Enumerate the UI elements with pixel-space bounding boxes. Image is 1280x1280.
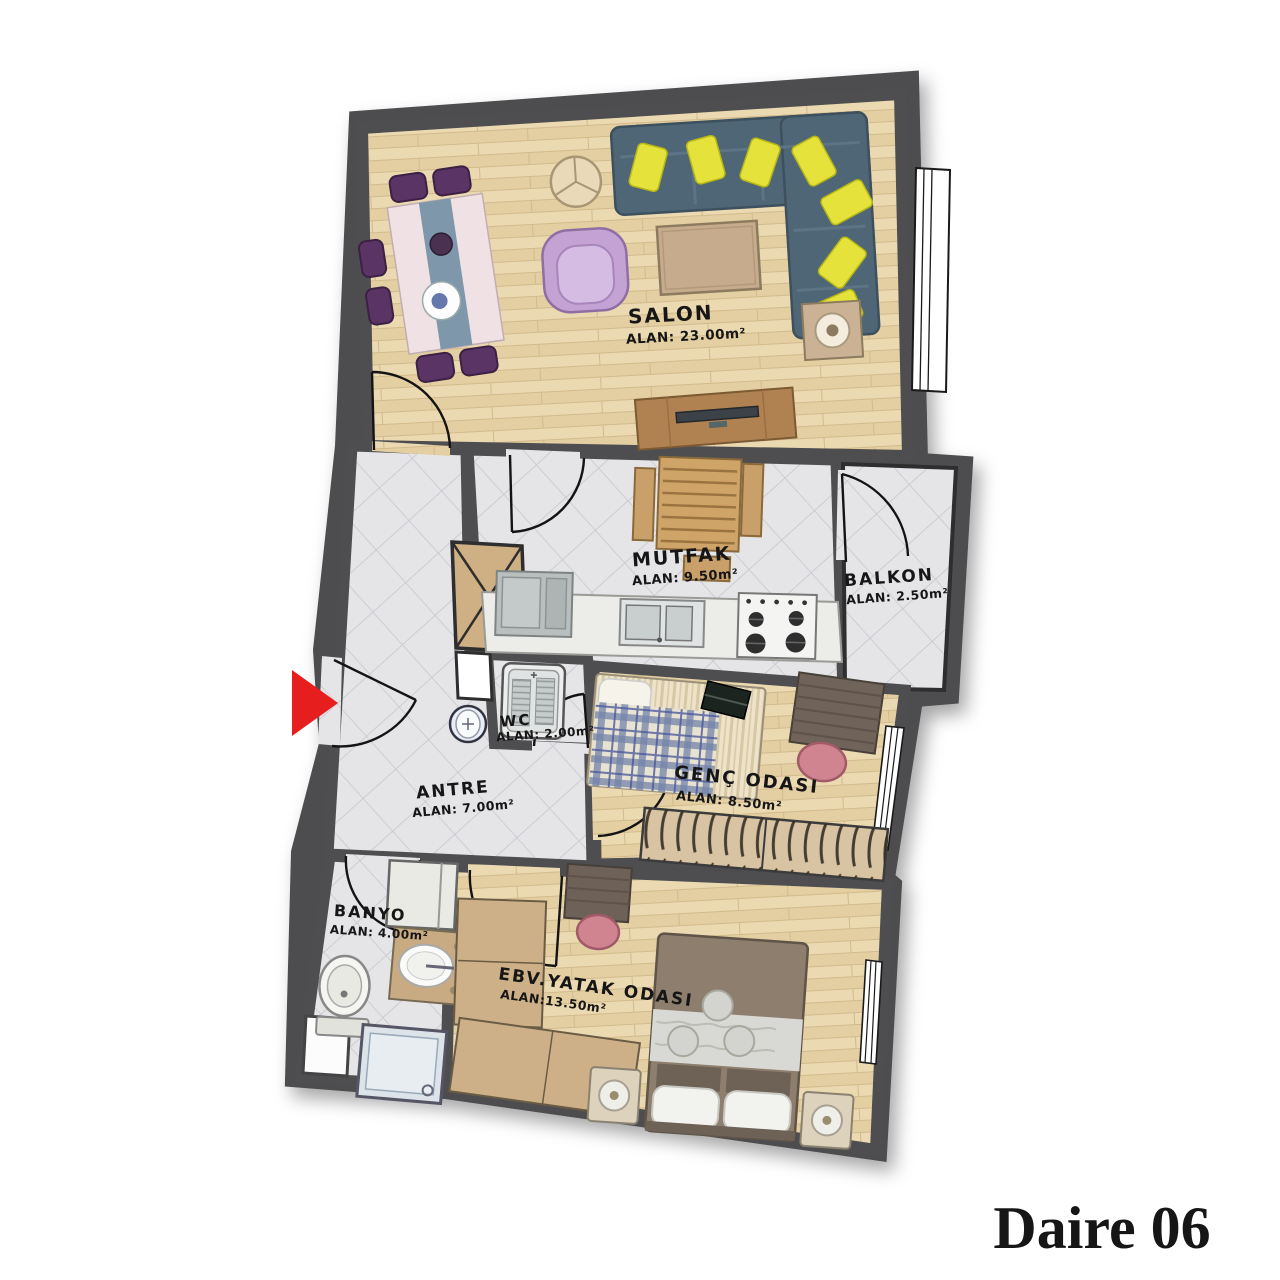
rosette-pillow <box>667 1025 699 1057</box>
rosette-pillow <box>702 989 734 1021</box>
salon-label: SALON <box>627 300 714 328</box>
armchair <box>541 227 630 314</box>
shower-tray <box>357 1024 447 1103</box>
fridge <box>495 571 573 637</box>
plan-title: Daire 06 <box>993 1195 1210 1261</box>
floor-plan-canvas: SALON ALAN: 23.00m² MUTFAK ALAN: 9.50m² … <box>0 0 1280 1280</box>
speaker-table <box>802 301 863 360</box>
coffee-table <box>657 221 761 295</box>
genc-desk <box>790 672 885 753</box>
wc-hand-sink <box>450 706 486 742</box>
round-side-table <box>549 155 602 208</box>
nightstand-right <box>800 1092 854 1149</box>
ebv-desk <box>564 864 632 922</box>
stove <box>737 593 817 659</box>
kitchen-sink <box>619 599 704 647</box>
nightstand-left <box>587 1067 641 1124</box>
floor-plan-page: SALON ALAN: 23.00m² MUTFAK ALAN: 9.50m² … <box>0 0 1280 1280</box>
salon-window <box>912 168 950 392</box>
rosette-pillow <box>723 1025 755 1057</box>
